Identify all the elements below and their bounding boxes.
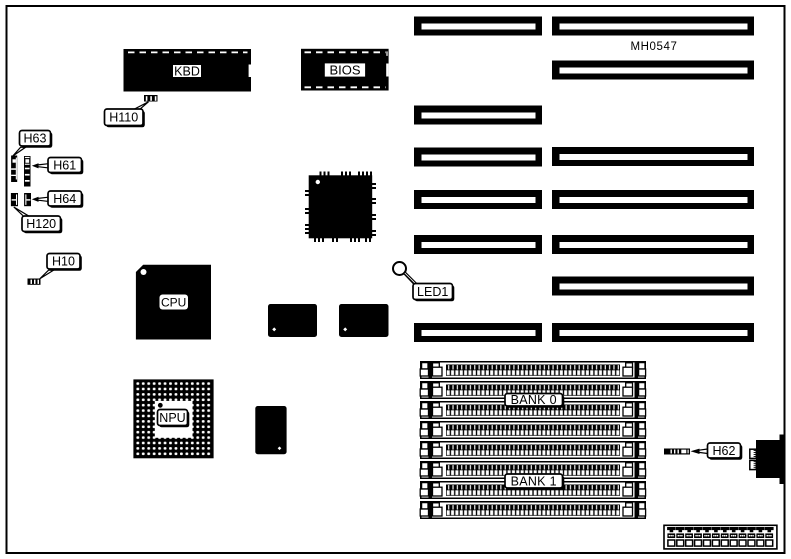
svg-text:H62: H62 [713, 444, 736, 458]
svg-text:H110: H110 [109, 111, 138, 125]
svg-text:H10: H10 [52, 255, 75, 269]
svg-text:H61: H61 [53, 158, 76, 172]
svg-text:KBD: KBD [174, 64, 200, 78]
svg-text:LED1: LED1 [417, 285, 448, 299]
svg-text:BANK 0: BANK 0 [511, 393, 557, 407]
svg-text:BANK 1: BANK 1 [511, 474, 557, 488]
svg-text:NPU: NPU [159, 411, 185, 425]
svg-text:H63: H63 [24, 132, 47, 146]
svg-text:MH0547: MH0547 [630, 41, 677, 53]
svg-text:CPU: CPU [161, 295, 186, 309]
svg-text:H120: H120 [26, 217, 56, 231]
svg-text:BIOS: BIOS [329, 63, 360, 78]
svg-text:H64: H64 [53, 192, 76, 206]
